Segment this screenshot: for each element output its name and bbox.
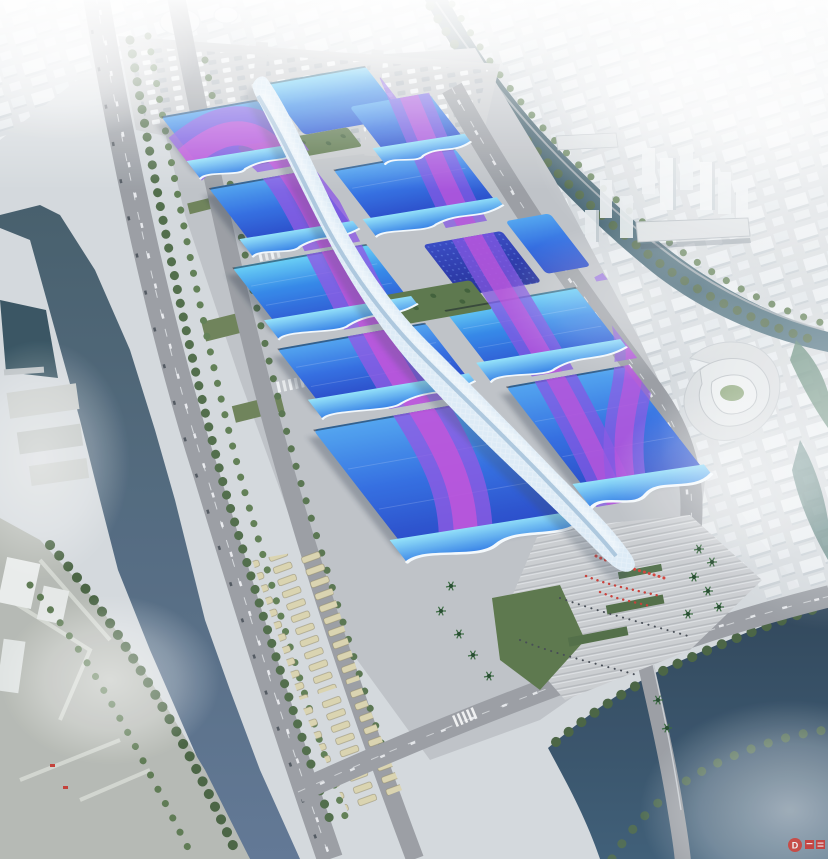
scene-canvas: D xyxy=(0,0,828,859)
aerial-rendering: D xyxy=(0,0,828,859)
fog-veil xyxy=(0,0,828,859)
watermark-logo-letter: D xyxy=(792,841,799,851)
fog-overlays xyxy=(0,0,828,859)
